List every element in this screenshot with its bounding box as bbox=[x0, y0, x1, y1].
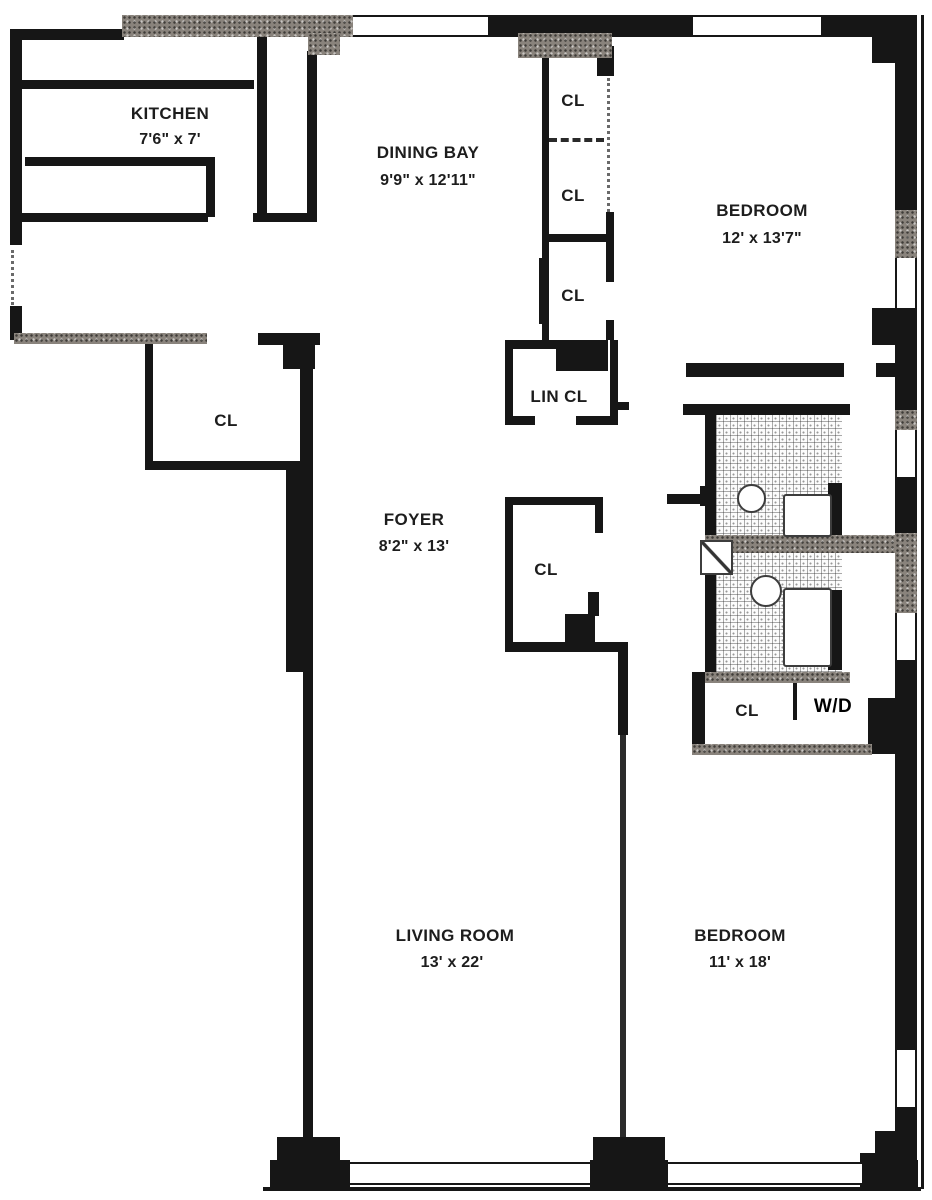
wall bbox=[277, 1137, 340, 1160]
wall bbox=[263, 1187, 921, 1191]
wall bbox=[505, 340, 560, 349]
wall bbox=[257, 32, 267, 222]
wall bbox=[606, 212, 614, 282]
room-label-kitchen: KITCHEN bbox=[131, 104, 209, 124]
wall bbox=[505, 497, 513, 645]
wall bbox=[615, 402, 629, 410]
window bbox=[353, 15, 488, 37]
wall bbox=[895, 15, 917, 210]
closet-label: CL bbox=[534, 560, 557, 580]
wall-textured bbox=[518, 33, 612, 58]
room-label-foyer: FOYER bbox=[384, 510, 445, 530]
wall bbox=[12, 29, 124, 40]
tub-fixture bbox=[783, 494, 832, 537]
window bbox=[350, 1162, 590, 1185]
wall bbox=[588, 592, 599, 616]
room-dims-kitchen: 7'6" x 7' bbox=[139, 131, 200, 149]
washer-dryer-label: W/D bbox=[814, 696, 852, 718]
wall bbox=[270, 1160, 350, 1189]
wall bbox=[895, 477, 917, 533]
wall bbox=[556, 340, 608, 371]
wall bbox=[300, 343, 313, 470]
wall bbox=[547, 234, 613, 242]
wall bbox=[505, 642, 605, 652]
wall-textured bbox=[895, 410, 917, 430]
window bbox=[895, 1050, 917, 1107]
wall-textured bbox=[705, 672, 850, 683]
wall bbox=[793, 680, 797, 720]
room-dims-bedroom-bottom: 11' x 18' bbox=[709, 954, 771, 972]
toilet-fixture bbox=[737, 484, 766, 513]
room-dims-living-room: 13' x 22' bbox=[421, 954, 484, 972]
toilet-fixture bbox=[750, 575, 782, 607]
wall bbox=[145, 342, 153, 469]
room-label-bedroom-top: BEDROOM bbox=[716, 201, 808, 221]
wall bbox=[13, 213, 208, 222]
floor-plan: KITCHEN 7'6" x 7' DINING BAY 9'9" x 12'1… bbox=[0, 0, 932, 1200]
window bbox=[895, 258, 917, 308]
wall bbox=[505, 497, 603, 505]
closet-label: CL bbox=[214, 411, 237, 431]
wall bbox=[505, 340, 513, 425]
wall-textured bbox=[14, 333, 207, 344]
wall-textured bbox=[705, 535, 917, 553]
wall bbox=[606, 320, 614, 340]
corner-sink-fixture bbox=[700, 540, 733, 575]
wall bbox=[692, 672, 705, 750]
wall bbox=[610, 340, 618, 425]
wall-dotted bbox=[11, 250, 17, 305]
room-dims-bedroom-top: 12' x 13'7" bbox=[722, 230, 802, 248]
room-label-dining-bay: DINING BAY bbox=[377, 143, 480, 163]
wall bbox=[303, 672, 313, 1137]
wall bbox=[705, 415, 716, 537]
wall bbox=[505, 416, 535, 425]
closet-label: CL bbox=[561, 91, 584, 111]
room-label-living-room: LIVING ROOM bbox=[396, 926, 515, 946]
window bbox=[895, 430, 917, 477]
window bbox=[693, 15, 821, 37]
wall-thin bbox=[620, 735, 626, 1137]
tub-fixture bbox=[783, 588, 832, 667]
wall bbox=[590, 1160, 668, 1189]
wall bbox=[872, 308, 917, 345]
wall bbox=[705, 575, 716, 675]
wall bbox=[565, 614, 595, 643]
closet-divider-dashed bbox=[549, 138, 604, 146]
wall bbox=[539, 258, 549, 324]
room-dims-foyer: 8'2" x 13' bbox=[379, 538, 450, 556]
wall bbox=[618, 650, 628, 735]
linen-closet-label: LIN CL bbox=[530, 387, 587, 407]
wall bbox=[595, 497, 603, 533]
wall bbox=[683, 404, 850, 415]
closet-label: CL bbox=[561, 286, 584, 306]
wall-textured bbox=[308, 33, 340, 55]
wall bbox=[25, 157, 215, 166]
wall bbox=[17, 80, 254, 89]
room-label-bedroom-bottom: BEDROOM bbox=[694, 926, 786, 946]
room-dims-dining-bay: 9'9" x 12'11" bbox=[380, 172, 476, 190]
wall bbox=[895, 660, 917, 1050]
wall-textured bbox=[895, 210, 917, 258]
wall bbox=[860, 1160, 918, 1189]
wall bbox=[686, 363, 844, 377]
window bbox=[668, 1162, 862, 1185]
wall bbox=[307, 51, 317, 222]
wall bbox=[286, 468, 313, 672]
wall bbox=[593, 1137, 665, 1160]
window bbox=[895, 613, 917, 660]
wall-textured bbox=[895, 533, 917, 613]
wall bbox=[206, 157, 215, 217]
wall bbox=[921, 15, 924, 1189]
closet-label: CL bbox=[561, 186, 584, 206]
wall-textured bbox=[692, 744, 872, 755]
wall-dotted bbox=[607, 78, 613, 212]
closet-label: CL bbox=[735, 701, 758, 721]
